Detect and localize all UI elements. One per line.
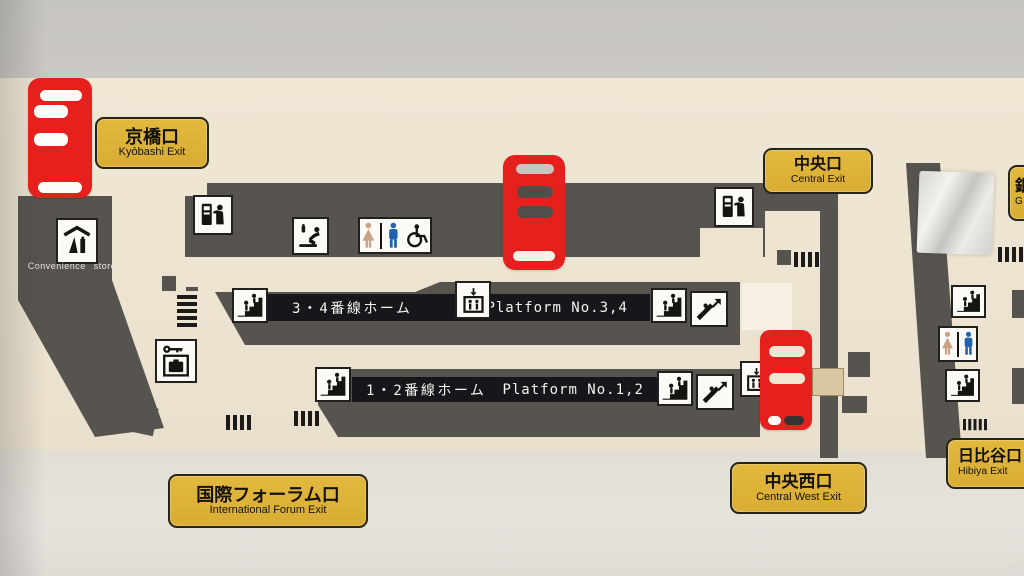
exit-sign-partial-right: 銀 G [1008, 165, 1024, 221]
elevator-icon [455, 281, 491, 319]
exit-sign-jp: 銀 [1015, 179, 1024, 196]
exit-sign-central-west: 中央西口 Central West Exit [730, 462, 867, 514]
restroom-icon [358, 217, 432, 254]
ticket-gate-symbol [28, 78, 92, 198]
stairs-icon [951, 285, 986, 318]
ticket-machine-icon [193, 195, 233, 235]
stairs-icon [232, 288, 268, 323]
ticket-gate-symbol [760, 330, 812, 430]
woman-icon [360, 222, 377, 250]
stairs-icon [945, 369, 980, 402]
stairs-icon [657, 371, 693, 406]
small-info-sign [812, 368, 844, 396]
pillar [777, 250, 791, 265]
exit-sign-en: Kyōbashi Exit [119, 146, 186, 158]
exit-sign-en: Hibiya Exit [958, 466, 1008, 478]
stairs-icon [315, 367, 351, 402]
exit-sign-jp: 国際フォーラム口 [196, 486, 339, 505]
ticket-machine-icon [714, 187, 754, 227]
ticket-machine-glyph [198, 200, 228, 230]
pillar [1012, 290, 1024, 318]
exit-sign-jp: 中央西口 [765, 473, 833, 491]
restroom-icon [938, 326, 978, 362]
exit-sign-en: Central West Exit [756, 491, 841, 503]
exit-sign-kyobashi: 京橋口 Kyōbashi Exit [95, 117, 209, 169]
pillar [1012, 368, 1024, 404]
convenience-store-icon [56, 218, 98, 264]
exit-sign-en: International Forum Exit [210, 504, 327, 516]
pillar [162, 276, 176, 291]
structure-vertical-bar [820, 211, 838, 458]
baby-changing-glyph [297, 222, 325, 250]
stairs-hatch-marks [963, 419, 987, 430]
exit-sign-en: Central Exit [791, 174, 845, 186]
pillar [186, 287, 198, 291]
tape-patch [917, 171, 995, 256]
exit-sign-international-forum: 国際フォーラム口 International Forum Exit [168, 474, 368, 528]
exit-sign-jp: 中央口 [794, 157, 842, 174]
coin-locker-icon [155, 339, 197, 383]
exit-sign-jp: 京橋口 [125, 128, 179, 147]
wall-background [0, 0, 1024, 78]
stairs-icon [651, 288, 687, 323]
stairs-hatch-marks [294, 411, 319, 426]
restroom-divider [380, 223, 382, 249]
pillar [848, 352, 870, 377]
structure-top-band [185, 183, 765, 257]
stairs-hatch-marks [226, 415, 251, 430]
platform-34-jp: 3・4番線ホーム [292, 298, 412, 318]
escalator-icon [690, 291, 728, 327]
ticket-gate-symbol [503, 155, 565, 270]
stairs-hatch-marks [794, 252, 819, 267]
outside-floor [0, 450, 1024, 576]
stairs-hatch-marks [177, 295, 197, 327]
platform-12-en: Platform No.1,2 [502, 382, 643, 398]
station-map-photo: 3・4番線ホーム Platform No.3,4 1・2番線ホーム Platfo… [0, 0, 1024, 576]
exit-sign-jp: 日比谷口 [958, 449, 1022, 466]
stairs-hatch-marks [998, 247, 1023, 262]
floor-square [742, 283, 792, 330]
floor-notch [700, 228, 763, 257]
convenience-store-label: Convenience store [12, 261, 132, 271]
wheelchair-accessible-icon [404, 223, 430, 249]
platform-34-en: Platform No.3,4 [486, 300, 627, 316]
platform-12-label-bar: 1・2番線ホーム Platform No.1,2 [352, 377, 660, 402]
restroom-divider [957, 332, 959, 357]
escalator-icon [696, 374, 734, 410]
man-icon [385, 222, 402, 250]
pillar [842, 396, 867, 413]
exit-sign-en: G [1015, 196, 1023, 207]
baby-changing-icon [292, 217, 329, 255]
platform-12-jp: 1・2番線ホーム [366, 380, 486, 400]
exit-sign-central: 中央口 Central Exit [763, 148, 873, 194]
exit-sign-hibiya: 日比谷口 Hibiya Exit [946, 438, 1024, 489]
